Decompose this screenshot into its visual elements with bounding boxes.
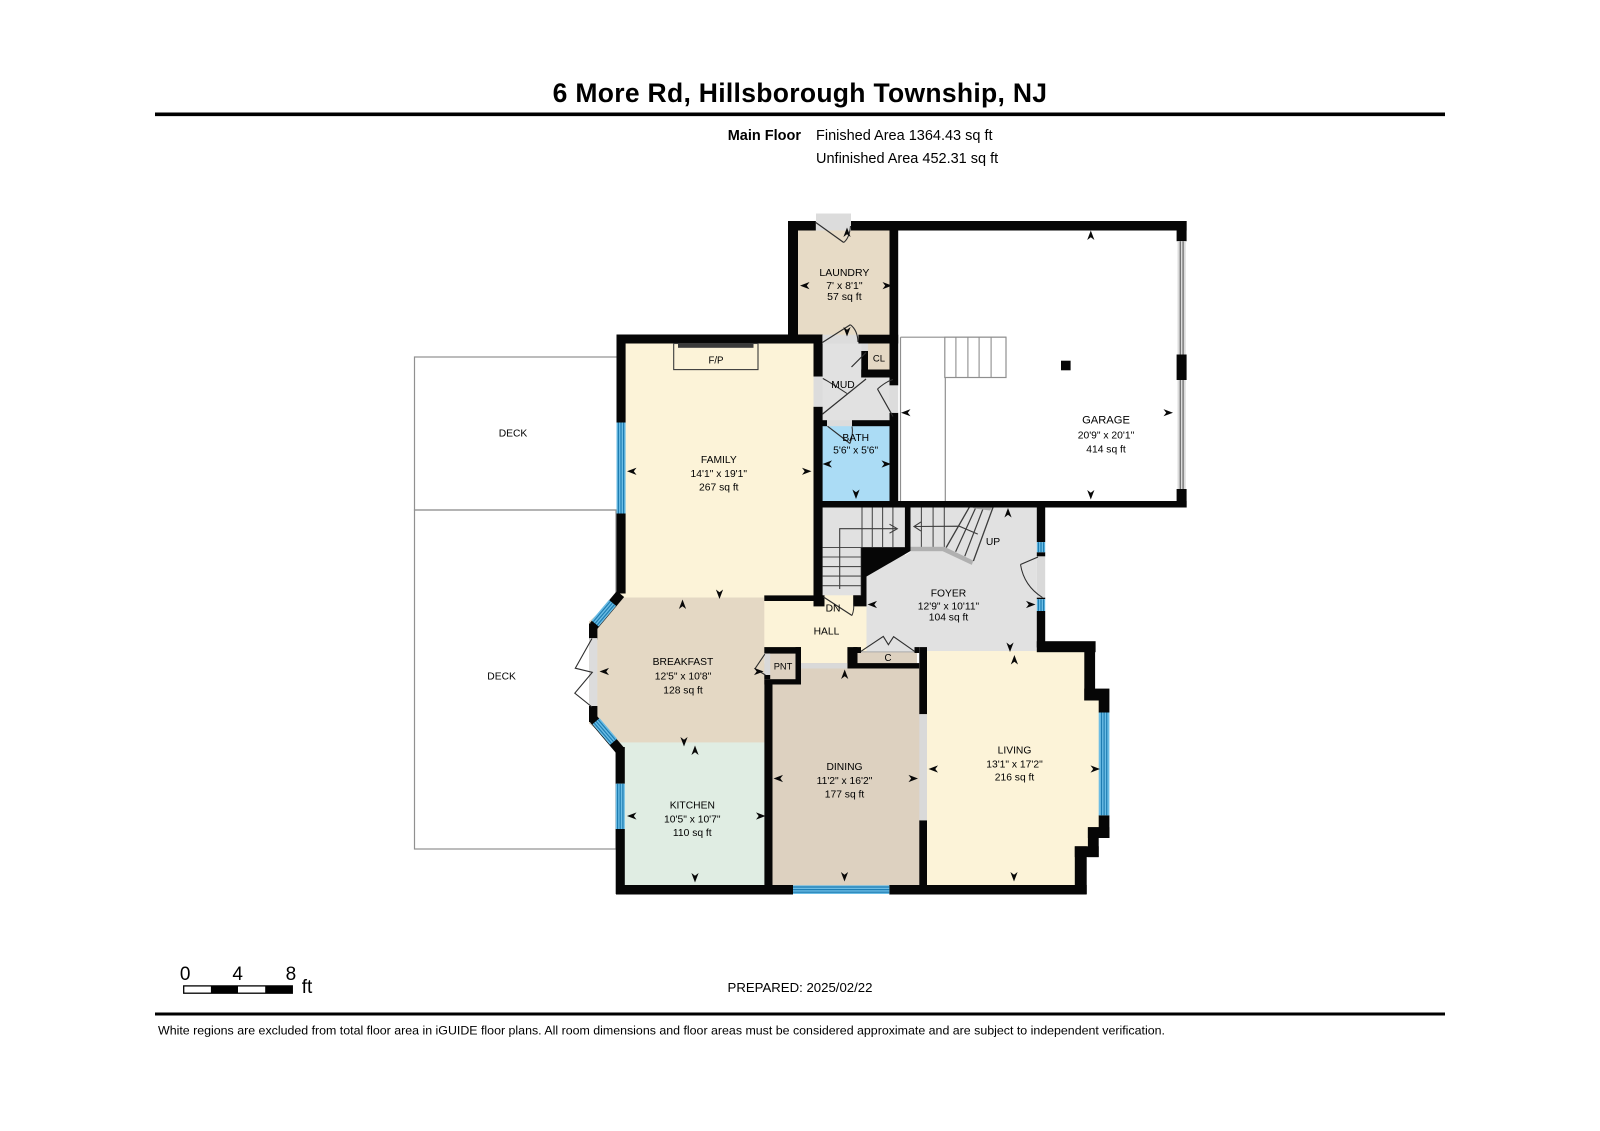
svg-text:LAUNDRY: LAUNDRY bbox=[819, 267, 869, 279]
svg-text:8: 8 bbox=[286, 964, 297, 985]
svg-text:Finished Area 1364.43 sq ft: Finished Area 1364.43 sq ft bbox=[816, 128, 993, 144]
svg-text:12'5" x 10'8": 12'5" x 10'8" bbox=[655, 672, 712, 683]
svg-text:CL: CL bbox=[873, 354, 885, 365]
svg-text:UP: UP bbox=[986, 537, 1000, 548]
svg-text:Main Floor: Main Floor bbox=[728, 128, 802, 144]
svg-text:F/P: F/P bbox=[708, 356, 723, 367]
svg-text:DECK: DECK bbox=[487, 672, 516, 683]
svg-text:ft: ft bbox=[302, 977, 313, 998]
svg-text:11'2" x 16'2": 11'2" x 16'2" bbox=[817, 776, 873, 787]
svg-text:6 More Rd, Hillsborough Townsh: 6 More Rd, Hillsborough Township, NJ bbox=[553, 78, 1048, 108]
svg-text:414 sq ft: 414 sq ft bbox=[1086, 445, 1126, 456]
svg-text:104 sq ft: 104 sq ft bbox=[929, 613, 969, 624]
svg-text:0: 0 bbox=[180, 964, 191, 985]
svg-text:DN: DN bbox=[826, 604, 841, 615]
svg-text:216 sq ft: 216 sq ft bbox=[995, 772, 1035, 783]
svg-text:Unfinished Area 452.31 sq ft: Unfinished Area 452.31 sq ft bbox=[816, 151, 998, 167]
svg-text:4: 4 bbox=[232, 964, 243, 985]
svg-text:GARAGE: GARAGE bbox=[1082, 415, 1130, 427]
svg-text:C: C bbox=[885, 653, 892, 664]
svg-text:14'1" x 19'1": 14'1" x 19'1" bbox=[691, 469, 748, 480]
svg-text:20'9" x 20'1": 20'9" x 20'1" bbox=[1078, 431, 1135, 442]
svg-text:KITCHEN: KITCHEN bbox=[670, 801, 715, 812]
svg-text:10'5" x 10'7": 10'5" x 10'7" bbox=[664, 815, 721, 826]
svg-text:PREPARED: 2025/02/22: PREPARED: 2025/02/22 bbox=[728, 980, 873, 995]
svg-text:57 sq ft: 57 sq ft bbox=[827, 291, 862, 303]
svg-text:FAMILY: FAMILY bbox=[701, 455, 737, 466]
svg-text:DECK: DECK bbox=[499, 429, 528, 440]
svg-text:BATH: BATH bbox=[842, 433, 869, 444]
svg-text:FOYER: FOYER bbox=[931, 589, 966, 600]
svg-text:110 sq ft: 110 sq ft bbox=[673, 828, 712, 839]
svg-text:MUD: MUD bbox=[831, 380, 854, 391]
svg-text:HALL: HALL bbox=[814, 627, 840, 638]
svg-text:5'6" x 5'6": 5'6" x 5'6" bbox=[833, 446, 878, 457]
svg-text:BREAKFAST: BREAKFAST bbox=[653, 657, 714, 668]
svg-text:12'9" x 10'11": 12'9" x 10'11" bbox=[918, 602, 980, 613]
svg-text:LIVING: LIVING bbox=[998, 746, 1032, 757]
svg-text:177 sq ft: 177 sq ft bbox=[825, 790, 865, 801]
svg-text:13'1" x 17'2": 13'1" x 17'2" bbox=[986, 759, 1043, 770]
svg-text:DINING: DINING bbox=[826, 762, 862, 773]
svg-text:PNT: PNT bbox=[774, 662, 793, 672]
svg-text:White regions are excluded fro: White regions are excluded from total fl… bbox=[158, 1024, 1165, 1038]
svg-text:267 sq ft: 267 sq ft bbox=[699, 483, 739, 494]
svg-text:128 sq ft: 128 sq ft bbox=[663, 686, 703, 697]
